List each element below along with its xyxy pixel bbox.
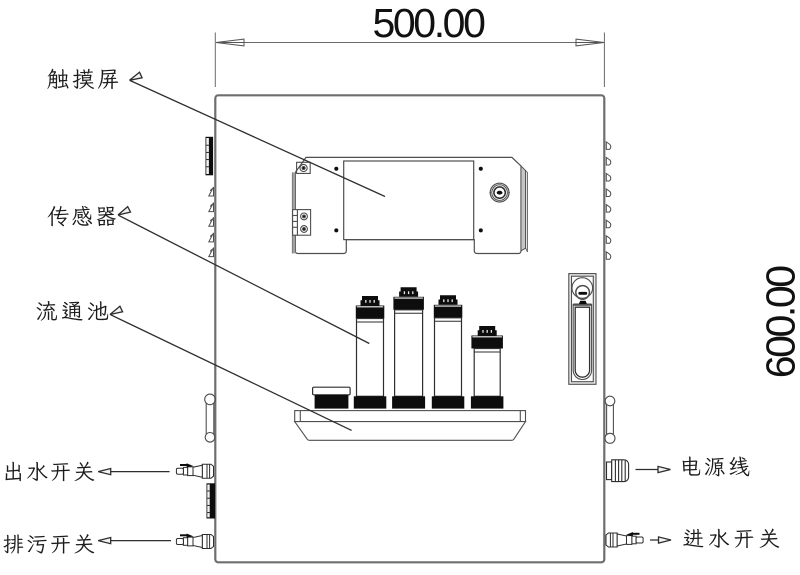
svg-text:500.00: 500.00 [372, 0, 485, 46]
svg-text:600.00: 600.00 [757, 266, 800, 379]
